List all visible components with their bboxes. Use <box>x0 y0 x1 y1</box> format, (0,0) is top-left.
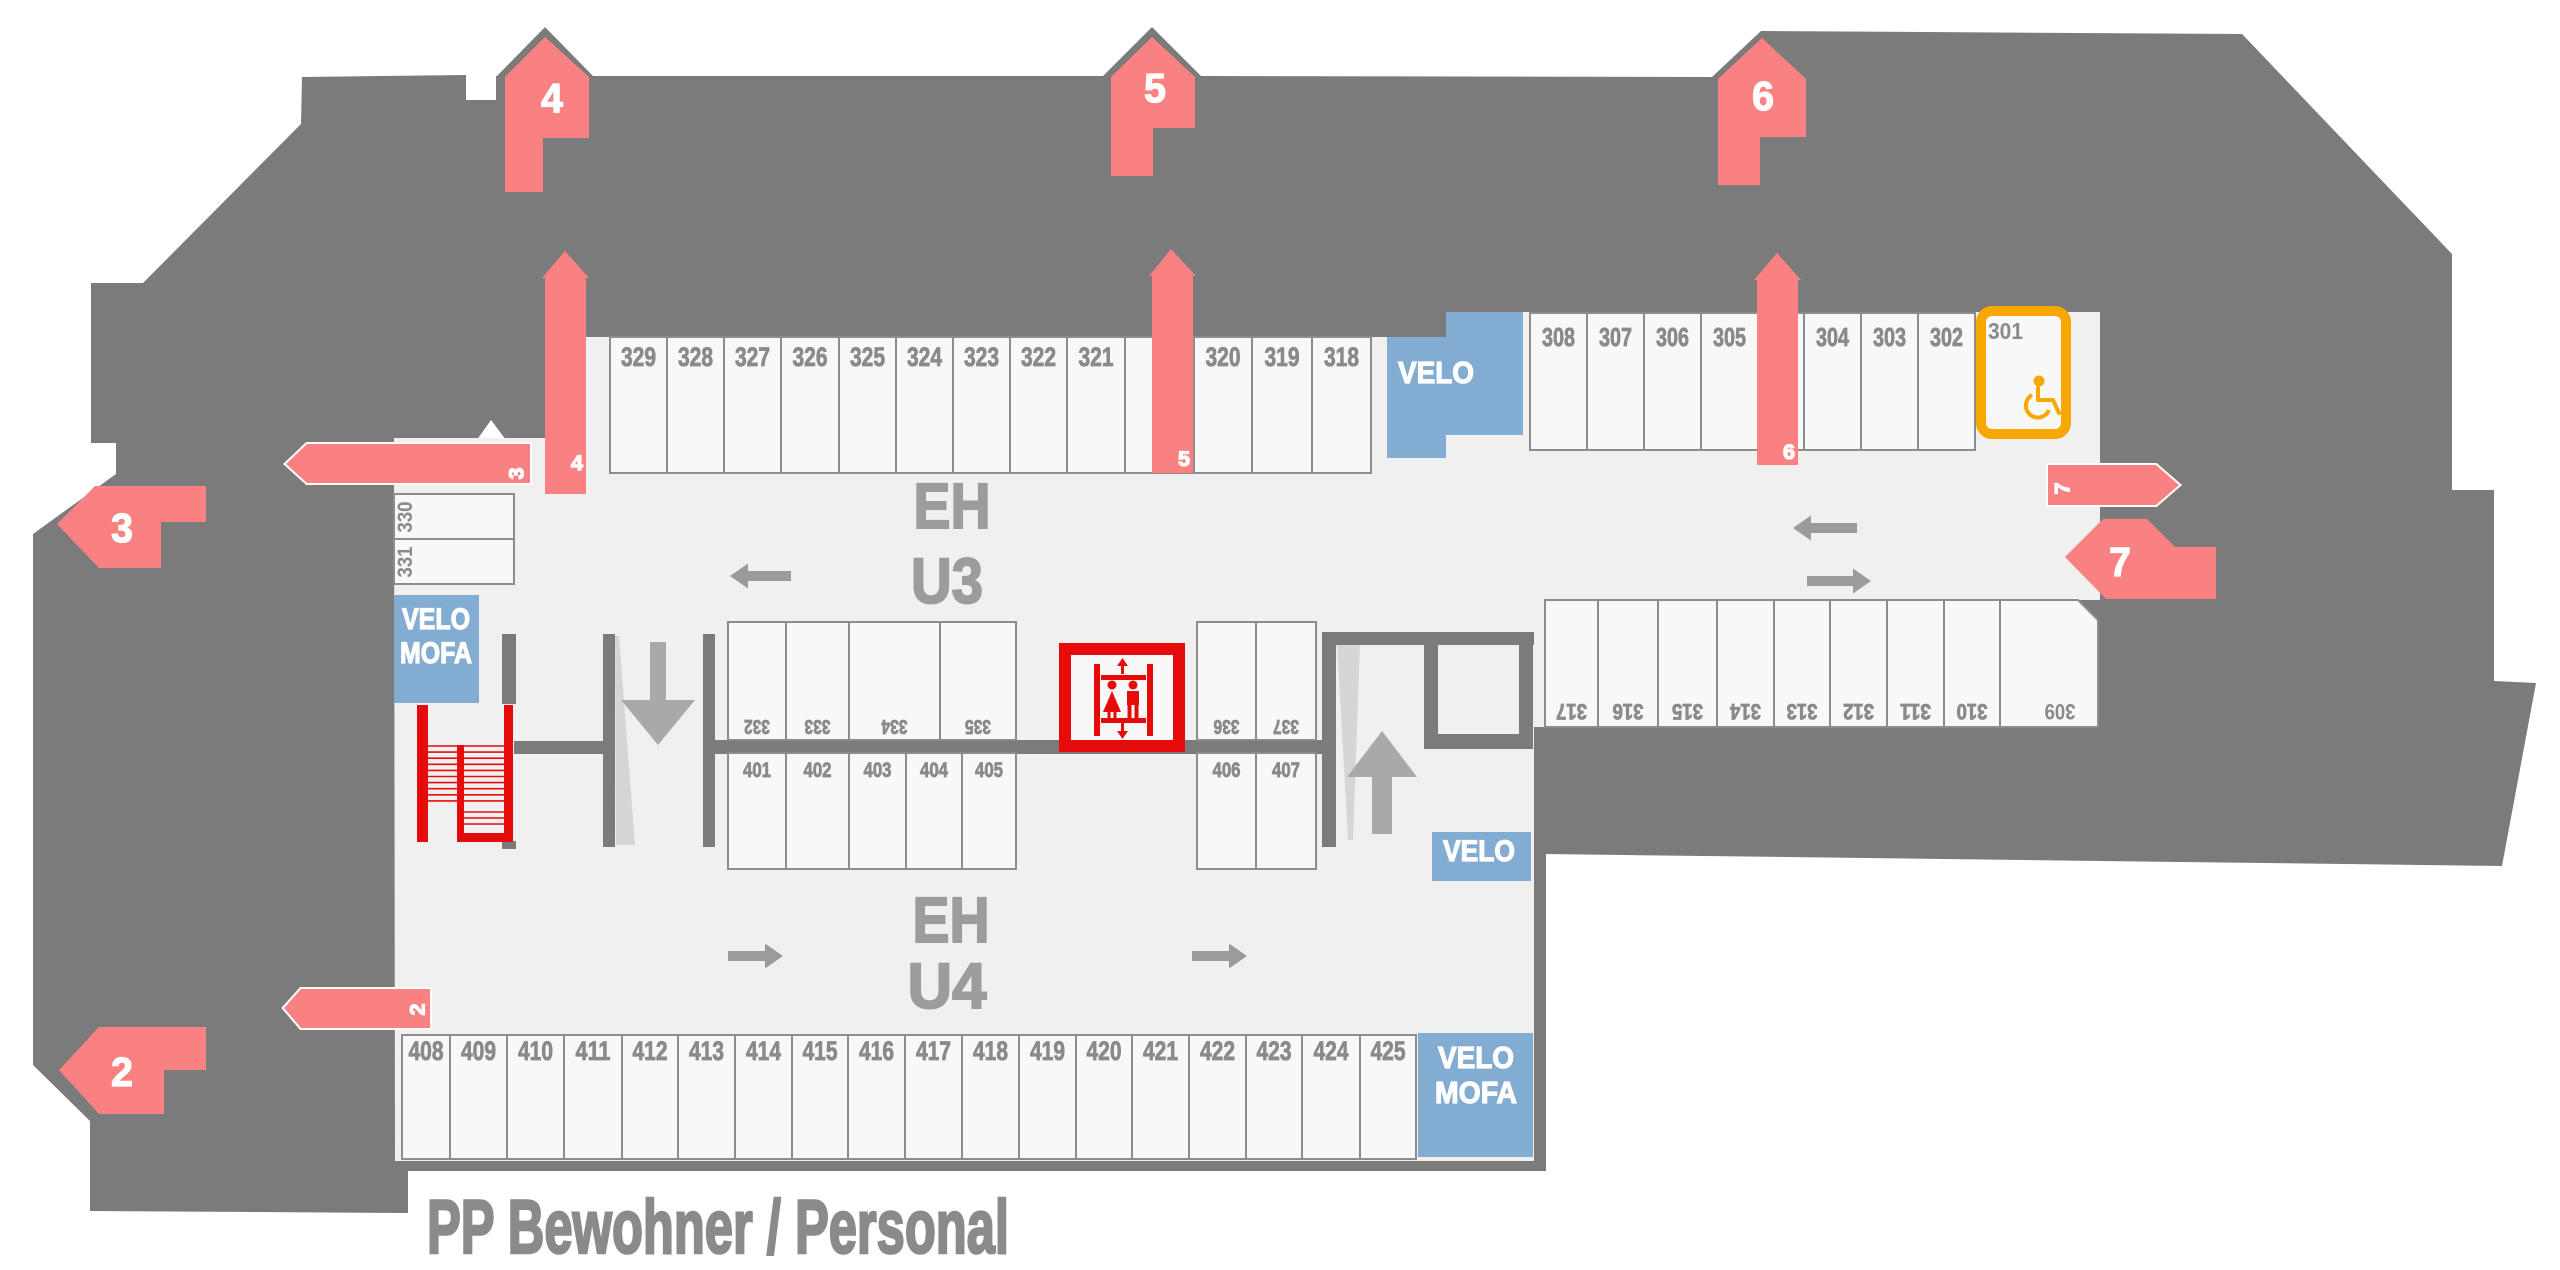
svg-text:VELO: VELO <box>402 603 470 636</box>
svg-text:412: 412 <box>633 1036 668 1066</box>
svg-text:EH: EH <box>914 470 991 542</box>
svg-text:307: 307 <box>1599 322 1632 352</box>
svg-text:309: 309 <box>2045 699 2076 724</box>
svg-text:414: 414 <box>746 1036 781 1066</box>
svg-text:302: 302 <box>1930 322 1963 352</box>
svg-text:306: 306 <box>1656 322 1689 352</box>
svg-text:319: 319 <box>1265 342 1300 372</box>
svg-text:420: 420 <box>1087 1036 1122 1066</box>
svg-text:407: 407 <box>1272 759 1300 782</box>
svg-text:419: 419 <box>1030 1036 1065 1066</box>
svg-text:332: 332 <box>744 715 770 737</box>
svg-text:310: 310 <box>1957 699 1988 724</box>
svg-text:3: 3 <box>111 505 133 551</box>
svg-text:321: 321 <box>1079 342 1114 372</box>
svg-text:3: 3 <box>506 467 529 479</box>
svg-text:315: 315 <box>1672 699 1703 724</box>
svg-text:301: 301 <box>1988 318 2023 344</box>
svg-text:327: 327 <box>735 342 770 372</box>
svg-text:314: 314 <box>1729 699 1761 724</box>
svg-text:416: 416 <box>859 1036 894 1066</box>
svg-text:422: 422 <box>1200 1036 1235 1066</box>
svg-text:6: 6 <box>1752 73 1774 119</box>
svg-text:411: 411 <box>576 1036 611 1066</box>
svg-text:6: 6 <box>1783 441 1795 464</box>
svg-text:333: 333 <box>805 715 831 737</box>
svg-text:U3: U3 <box>911 545 983 617</box>
svg-text:326: 326 <box>793 342 828 372</box>
svg-text:324: 324 <box>907 342 942 372</box>
svg-text:312: 312 <box>1843 699 1874 724</box>
svg-text:330: 330 <box>394 502 417 533</box>
svg-text:331: 331 <box>394 546 417 577</box>
svg-text:405: 405 <box>975 759 1003 782</box>
svg-text:5: 5 <box>1178 448 1190 471</box>
svg-text:303: 303 <box>1873 322 1906 352</box>
svg-text:408: 408 <box>409 1036 444 1066</box>
svg-text:VELO: VELO <box>1398 355 1474 390</box>
svg-text:311: 311 <box>1900 699 1931 724</box>
svg-text:335: 335 <box>965 715 991 737</box>
svg-text:5: 5 <box>1144 65 1166 111</box>
svg-text:305: 305 <box>1713 322 1746 352</box>
svg-text:317: 317 <box>1556 699 1587 724</box>
svg-text:328: 328 <box>678 342 713 372</box>
svg-text:304: 304 <box>1816 322 1849 352</box>
svg-text:316: 316 <box>1613 699 1644 724</box>
svg-text:402: 402 <box>804 759 832 782</box>
svg-text:4: 4 <box>541 75 563 121</box>
svg-text:308: 308 <box>1542 322 1575 352</box>
svg-text:U4: U4 <box>908 950 987 1022</box>
svg-text:320: 320 <box>1206 342 1241 372</box>
svg-text:2: 2 <box>407 1003 430 1015</box>
svg-text:334: 334 <box>881 715 908 737</box>
svg-text:410: 410 <box>518 1036 553 1066</box>
svg-text:406: 406 <box>1213 759 1241 782</box>
svg-text:421: 421 <box>1143 1036 1178 1066</box>
svg-text:7: 7 <box>2052 482 2075 494</box>
svg-text:MOFA: MOFA <box>1435 1075 1517 1110</box>
svg-text:417: 417 <box>916 1036 951 1066</box>
svg-text:2: 2 <box>111 1049 133 1095</box>
svg-text:337: 337 <box>1273 715 1299 737</box>
svg-text:PP Bewohner / Personal: PP Bewohner / Personal <box>427 1185 1009 1265</box>
svg-text:415: 415 <box>803 1036 838 1066</box>
svg-text:418: 418 <box>973 1036 1008 1066</box>
svg-text:4: 4 <box>571 452 583 475</box>
svg-text:409: 409 <box>461 1036 496 1066</box>
svg-text:329: 329 <box>621 342 656 372</box>
svg-text:413: 413 <box>689 1036 724 1066</box>
svg-text:MOFA: MOFA <box>400 637 472 670</box>
svg-text:318: 318 <box>1324 342 1359 372</box>
svg-text:EH: EH <box>913 884 990 956</box>
svg-text:336: 336 <box>1214 715 1240 737</box>
svg-text:325: 325 <box>850 342 885 372</box>
svg-text:404: 404 <box>920 759 948 782</box>
svg-text:425: 425 <box>1371 1036 1406 1066</box>
svg-text:424: 424 <box>1314 1036 1349 1066</box>
svg-text:VELO: VELO <box>1438 1040 1514 1075</box>
svg-text:322: 322 <box>1021 342 1056 372</box>
svg-text:VELO: VELO <box>1443 835 1515 868</box>
svg-text:401: 401 <box>743 759 771 782</box>
svg-text:403: 403 <box>864 759 892 782</box>
svg-text:313: 313 <box>1787 699 1818 724</box>
svg-text:323: 323 <box>964 342 999 372</box>
svg-text:423: 423 <box>1257 1036 1292 1066</box>
svg-text:7: 7 <box>2109 539 2131 585</box>
